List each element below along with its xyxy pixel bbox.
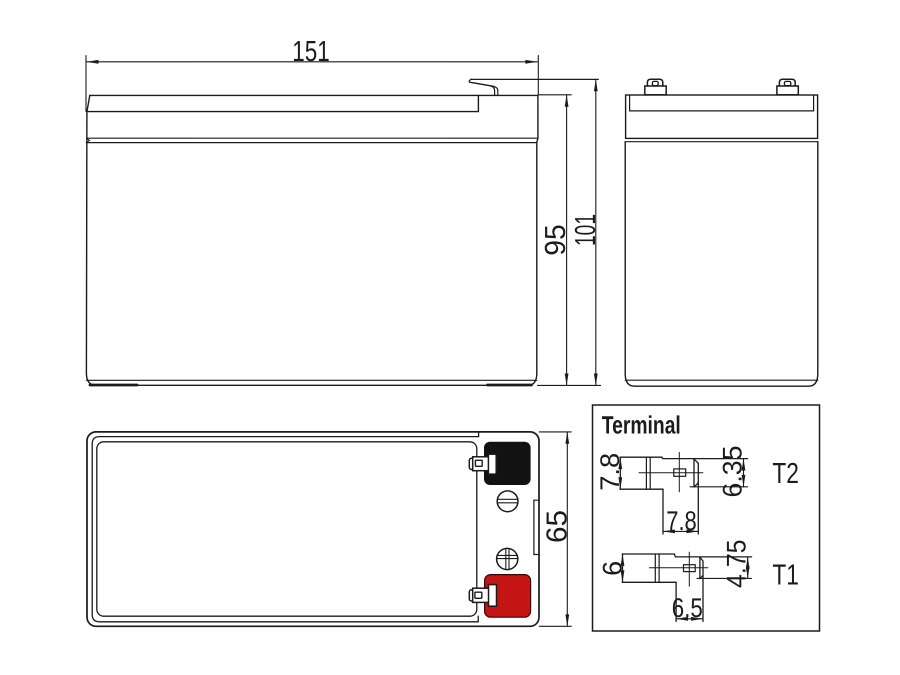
svg-text:4.75: 4.75 — [722, 539, 752, 588]
svg-text:7.8: 7.8 — [666, 506, 697, 536]
svg-text:6.5: 6.5 — [672, 593, 703, 623]
svg-text:6.35: 6.35 — [717, 446, 747, 498]
svg-text:95: 95 — [540, 224, 572, 256]
svg-text:T2: T2 — [772, 458, 799, 490]
svg-text:101: 101 — [570, 214, 602, 246]
svg-text:65: 65 — [541, 510, 573, 543]
svg-text:Terminal: Terminal — [602, 412, 681, 440]
svg-text:151: 151 — [292, 36, 330, 68]
svg-text:7.8: 7.8 — [595, 453, 625, 491]
svg-text:T1: T1 — [772, 560, 799, 592]
svg-text:6: 6 — [598, 561, 628, 576]
